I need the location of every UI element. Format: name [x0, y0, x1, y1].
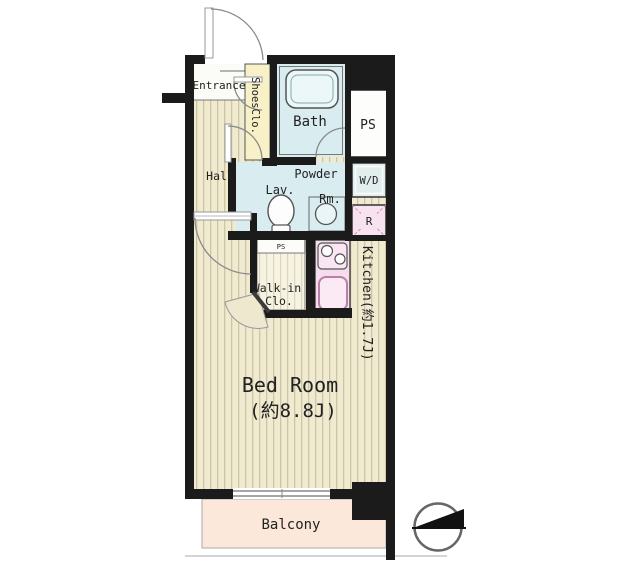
wash-basin-icon [316, 204, 337, 225]
wall-bottom-left [186, 489, 233, 499]
stove-burner-2 [335, 254, 345, 264]
shoes-closet-label: ShoesClo. [249, 77, 261, 134]
wall-shoescloset-bath [270, 55, 277, 165]
refrigerator-label: R [366, 215, 373, 228]
walk-in-closet-label-2: Clo. [265, 294, 293, 308]
balcony-label: Balcony [261, 517, 320, 533]
wall-bath-ps [345, 90, 351, 157]
floor-plan-canvas: Entrance ShoesClo. Hall Bath PS Powder R… [0, 0, 640, 569]
wall-bottom-mid [330, 489, 355, 499]
wall-counter-bottom [313, 308, 352, 318]
wall-right [386, 55, 395, 560]
pipe-space-small-label: PS [277, 243, 285, 251]
toilet-icon [268, 195, 294, 227]
powder-room-door-leaf [225, 124, 231, 162]
wall-left-nub [162, 93, 187, 103]
north-arrow-icon [412, 504, 466, 551]
bathtub-icon [286, 70, 338, 108]
stove-burner-1 [322, 246, 333, 257]
kitchen-label: Kitchen(約1.7J) [359, 246, 374, 361]
hall-label: Hall [206, 169, 234, 183]
lavatory-label: Lav. [266, 183, 295, 197]
entrance-door-leaf [205, 8, 213, 58]
pipe-space-label: PS [360, 118, 376, 133]
washer-dryer-label: W/D [360, 175, 379, 187]
wall-walkin-kitchen [306, 233, 315, 318]
walk-in-closet-label-1: Walk-in [253, 281, 301, 295]
wall-bath-bottom [270, 157, 316, 165]
entrance-label: Entrance [193, 79, 246, 92]
powder-room-label-1: Powder [294, 167, 337, 181]
wall-hall-powder [228, 158, 236, 215]
entrance-door-arc [211, 9, 263, 60]
wall-left [185, 55, 194, 499]
bath-label: Bath [293, 114, 327, 130]
kitchen-sink-icon [319, 277, 347, 310]
powder-room-label-2: Rm. [319, 192, 341, 206]
wall-powder-bottom [228, 231, 352, 240]
bedroom-name-label: Bed Room [242, 373, 338, 397]
wall-powder-wd [345, 163, 352, 240]
floor-plan-drawing: Entrance ShoesClo. Hall Bath PS Powder R… [0, 0, 640, 569]
bedroom-size-label: (約8.8J) [249, 400, 337, 422]
